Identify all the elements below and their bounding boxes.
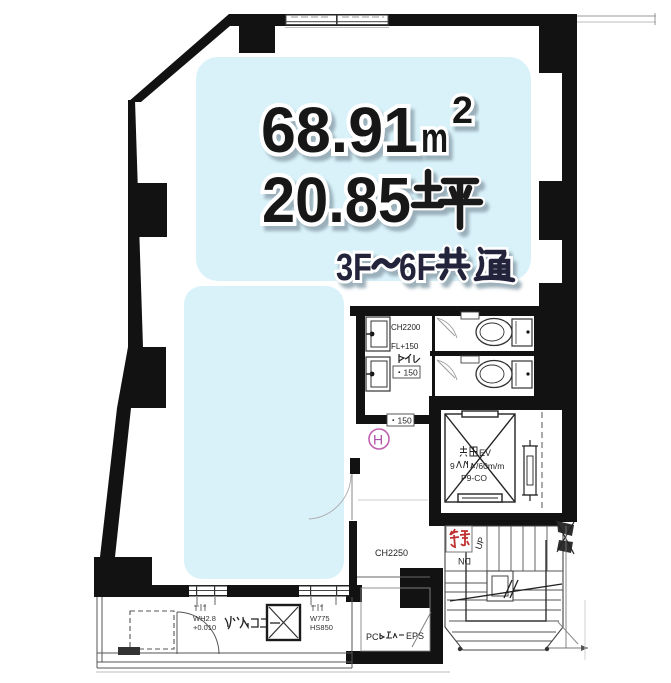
svg-text:CH2200: CH2200	[391, 323, 421, 332]
svg-text:2: 2	[452, 90, 473, 132]
svg-text:CH2250: CH2250	[375, 548, 408, 558]
svg-text:H: H	[373, 432, 383, 448]
svg-text:HS850: HS850	[310, 623, 333, 632]
svg-text:20.85: 20.85	[262, 164, 411, 236]
svg-text:9: 9	[450, 461, 455, 471]
svg-text:DN: DN	[458, 556, 471, 566]
svg-text:3F: 3F	[336, 247, 372, 289]
svg-text:+0.010: +0.010	[193, 623, 216, 632]
svg-text:・150: ・150	[395, 368, 418, 378]
svg-text:PC: PC	[366, 632, 379, 642]
svg-text:WH2.8: WH2.8	[193, 614, 216, 623]
svg-text:EV: EV	[479, 448, 491, 458]
svg-text:P9-CO: P9-CO	[461, 473, 487, 483]
svg-text:m: m	[421, 114, 448, 161]
svg-text:W775: W775	[310, 614, 330, 623]
svg-text:68.91: 68.91	[261, 94, 418, 166]
svg-text:6F: 6F	[399, 247, 436, 289]
svg-text:・150: ・150	[389, 416, 412, 426]
svg-text:FL+150: FL+150	[391, 342, 419, 351]
svg-text:/60m/m: /60m/m	[476, 461, 504, 471]
svg-text:EPS: EPS	[406, 631, 424, 641]
